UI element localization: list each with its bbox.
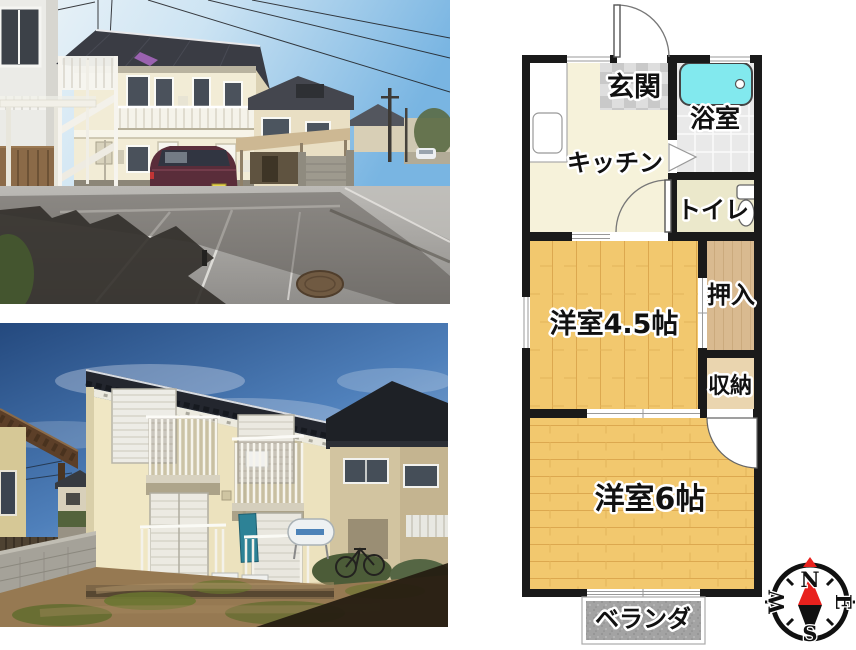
- compass-rose-icon: N S W E: [764, 557, 856, 646]
- label-toilet: トイレ: [677, 196, 749, 224]
- label-bathroom: 浴室: [690, 104, 740, 133]
- balcony-ac-unit: [246, 451, 268, 467]
- exterior-rear-yard-photo: [0, 323, 448, 627]
- balcony-railing: [116, 106, 256, 130]
- compass-s: S: [802, 621, 817, 646]
- label-oshiire: 押入: [707, 281, 755, 309]
- entrance-door-swing-icon: [614, 5, 669, 57]
- compass-n: N: [800, 567, 819, 592]
- floorplan: 玄関 浴室 キッチン トイレ 押入 収納 洋室4.5帖 洋室6帖 ベランダ N …: [480, 0, 856, 650]
- compass-e: E: [831, 594, 856, 610]
- kitchen-sink-icon: [533, 113, 562, 153]
- compass-north-marker: [803, 557, 817, 567]
- label-genkan: 玄関: [607, 71, 661, 103]
- utility-pole: [388, 88, 392, 162]
- rear-photo-illustration: [0, 323, 448, 627]
- exterior-front-street-photo: [0, 0, 450, 304]
- label-veranda: ベランダ: [595, 605, 691, 633]
- compass-w: W: [764, 590, 789, 615]
- label-kitchen: キッチン: [567, 149, 663, 177]
- floorplan-drawing: 玄関 浴室 キッチン トイレ 押入 収納 洋室4.5帖 洋室6帖 ベランダ N …: [480, 0, 856, 650]
- front-photo-illustration: [0, 0, 450, 304]
- manhole-cover: [297, 271, 343, 297]
- block-wall: [300, 156, 354, 186]
- label-storage: 収納: [708, 373, 752, 399]
- bathtub-drain: [736, 80, 745, 89]
- label-room6: 洋室6帖: [595, 482, 706, 517]
- listing-collage: 玄関 浴室 キッチン トイレ 押入 収納 洋室4.5帖 洋室6帖 ベランダ N …: [0, 0, 856, 650]
- label-room45: 洋室4.5帖: [550, 308, 679, 340]
- road: [0, 186, 450, 304]
